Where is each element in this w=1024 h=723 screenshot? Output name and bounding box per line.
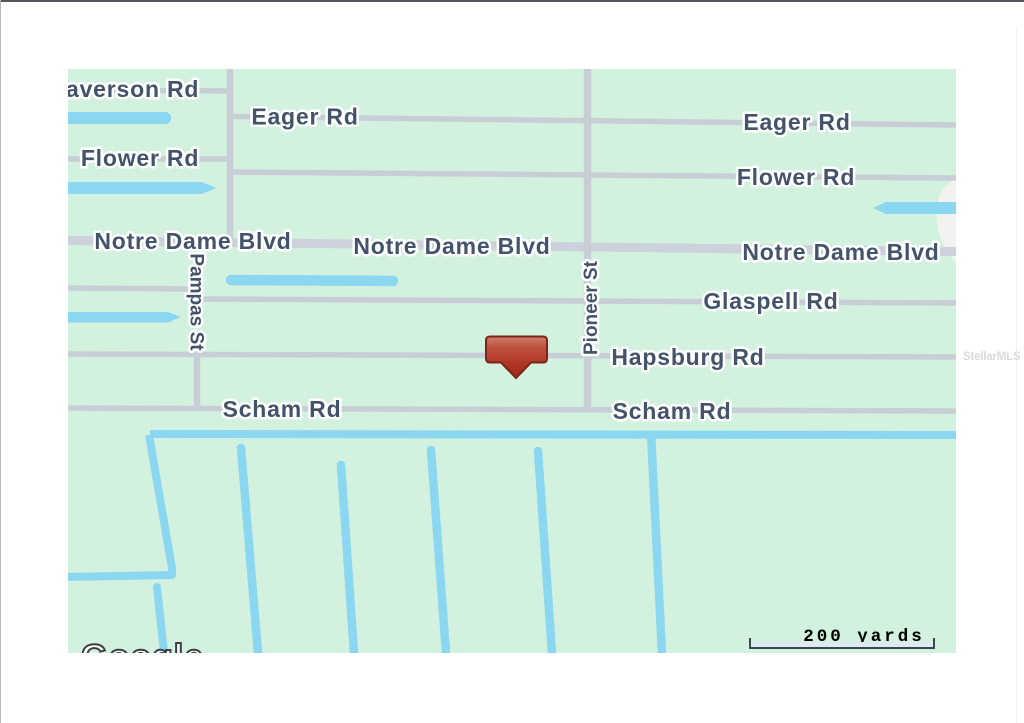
- svg-text:Scham Rd: Scham Rd: [223, 396, 342, 422]
- svg-text:Notre Dame Blvd: Notre Dame Blvd: [353, 233, 550, 259]
- svg-text:averson Rd: averson Rd: [68, 76, 199, 102]
- svg-text:Pioneer St: Pioneer St: [581, 260, 602, 355]
- svg-text:Pampas St: Pampas St: [186, 253, 207, 351]
- svg-text:Eager Rd: Eager Rd: [251, 104, 358, 130]
- svg-text:Eager Rd: Eager Rd: [743, 109, 850, 135]
- svg-text:Notre Dame Blvd: Notre Dame Blvd: [94, 228, 291, 254]
- svg-text:Flower Rd: Flower Rd: [81, 145, 199, 171]
- svg-text:Glaspell Rd: Glaspell Rd: [703, 288, 838, 314]
- svg-text:Google: Google: [81, 638, 204, 653]
- svg-text:Scham Rd: Scham Rd: [613, 398, 732, 424]
- svg-text:Hapsburg Rd: Hapsburg Rd: [611, 344, 764, 370]
- svg-text:Flower Rd: Flower Rd: [737, 164, 855, 190]
- svg-text:Notre Dame Blvd: Notre Dame Blvd: [742, 239, 939, 265]
